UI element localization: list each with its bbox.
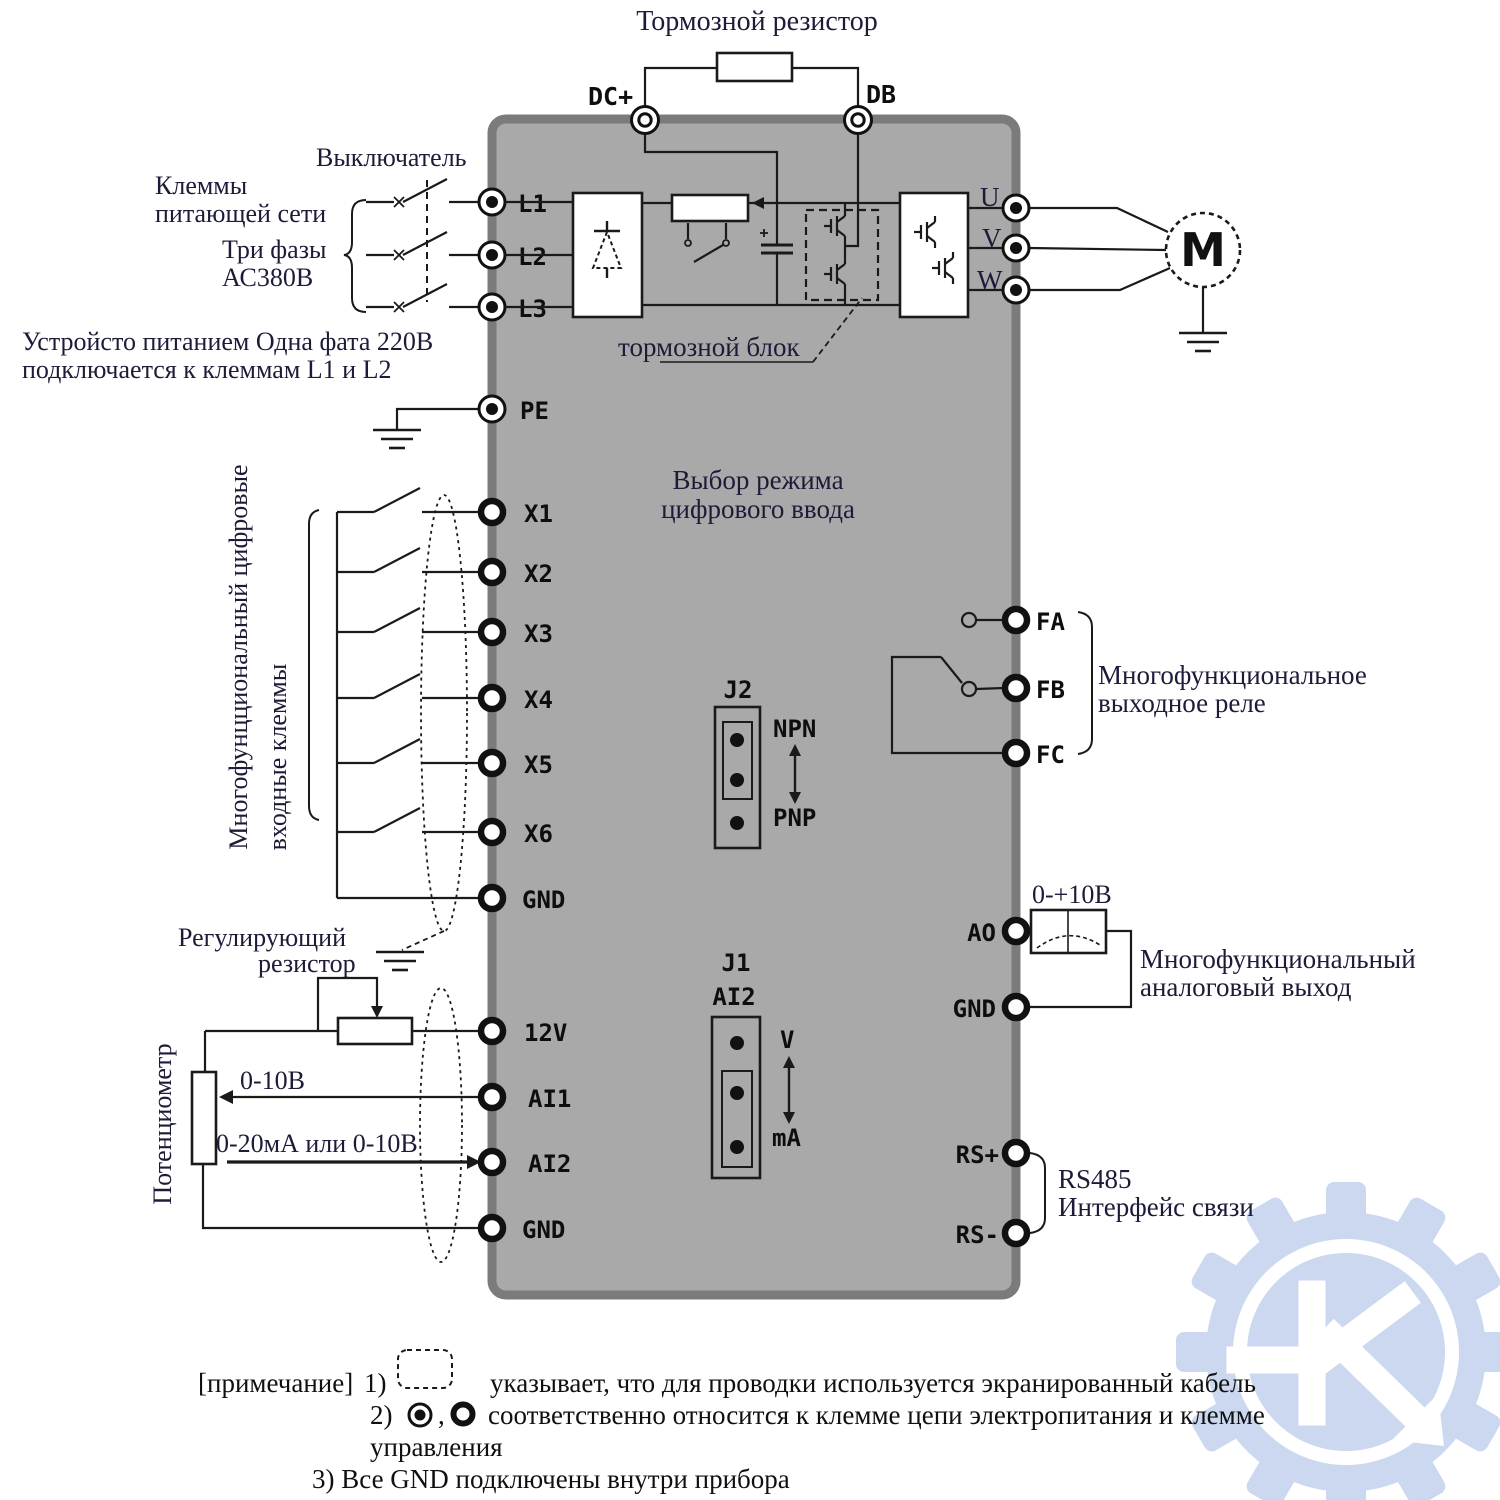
terminal-ai1 (481, 1086, 503, 1108)
terminal-x3 (481, 621, 503, 643)
rs485-bracket (1030, 1153, 1045, 1233)
analog-output-label-2: аналоговый выход (1140, 972, 1352, 1002)
ai1-range-label: 0-10В (240, 1066, 305, 1095)
jumper-j1-label: J1 (722, 949, 751, 977)
terminal-label-l1: L1 (518, 190, 547, 218)
terminal-db (845, 107, 872, 134)
terminal-v (1003, 235, 1029, 261)
terminal-rs-minus (1005, 1222, 1027, 1244)
motor-ground (1179, 333, 1227, 351)
adjusting-resistor-label-1: Регулирующий (178, 923, 346, 952)
pot-gnd-wire (203, 1164, 479, 1228)
terminal-fa (1005, 609, 1027, 631)
relay-output-label-2: выходное реле (1098, 688, 1266, 718)
terminal-w (1003, 277, 1029, 303)
terminal-dc-plus (632, 107, 659, 134)
adjusting-resistor-label-2: резистор (258, 949, 356, 978)
note-3-text: 3) Все GND подключены внутри прибора (312, 1464, 790, 1494)
diagram-title: Тормозной резистор (636, 6, 877, 37)
analog-output-label-1: Многофункциональный (1140, 944, 1416, 974)
rectifier-block (573, 193, 642, 317)
terminal-pe (479, 396, 505, 422)
terminal-x1 (481, 501, 503, 523)
terminal-label-x3: X3 (524, 620, 553, 648)
potentiometer-label: Потенциометр (148, 1043, 177, 1204)
terminal-ai2 (481, 1151, 503, 1173)
terminal-label-dc-plus: DC+ (588, 82, 633, 111)
terminal-l2 (479, 242, 505, 268)
motor-label: M (1180, 223, 1226, 277)
terminal-u (1003, 195, 1029, 221)
single-phase-note-1: Устройсто питанием Одна фата 220В (22, 327, 433, 356)
supply-brace (344, 200, 366, 312)
jumper-j1-sub: AI2 (712, 983, 755, 1011)
terminal-label-x5: X5 (524, 751, 553, 779)
shield-ground-digital (376, 931, 444, 970)
terminal-x4 (481, 687, 503, 709)
terminal-gnd-ao (1005, 996, 1027, 1018)
digital-inputs-label-1: Многофунцциональный цифровые (224, 464, 253, 849)
terminal-label-l2: L2 (518, 243, 547, 271)
jumper-j2-pnp: PNP (773, 804, 816, 832)
note-1-text: указывает, что для проводки используется… (490, 1368, 1256, 1398)
terminal-label-ai2: AI2 (528, 1150, 571, 1178)
terminal-label-fa: FA (1036, 608, 1065, 636)
terminal-x5 (481, 752, 503, 774)
jumper-j2-label: J2 (724, 676, 753, 704)
terminal-label-u: U (980, 182, 1000, 212)
terminal-label-ao: AO (967, 919, 996, 947)
terminal-label-w: W (977, 265, 1003, 295)
terminal-label-fc: FC (1036, 741, 1065, 769)
digital-inputs-label-2: входные клеммы (263, 664, 292, 851)
terminal-label-12v: 12V (524, 1019, 567, 1047)
terminal-fc (1005, 742, 1027, 764)
note-prefix: [примечание] (198, 1368, 353, 1398)
terminal-label-l3: L3 (518, 295, 547, 323)
shield-cable-digital (421, 495, 467, 931)
terminal-label-x2: X2 (524, 560, 553, 588)
terminal-x2 (481, 561, 503, 583)
power-terminal-icon (409, 1404, 431, 1426)
terminal-label-fb: FB (1036, 676, 1065, 704)
jumper-j1-ma: mA (772, 1124, 801, 1152)
rs485-label-1: RS485 (1058, 1164, 1132, 1194)
watermark-logo (1176, 1182, 1500, 1500)
notes: [примечание] 1) указывает, что для прово… (198, 1350, 1265, 1494)
jumper-j2-npn: NPN (773, 715, 816, 743)
wiring-diagram: Тормозной резистор DC+ DB Выключатель Кл… (0, 0, 1500, 1500)
terminal-rs-plus (1005, 1142, 1027, 1164)
supply-terminals-label-2: питающей сети (155, 199, 326, 228)
digital-mode-label-1: Выбор режима (672, 465, 843, 495)
terminal-label-gnd-analog: GND (522, 1216, 565, 1244)
terminal-12v (481, 1020, 503, 1042)
terminal-label-pe: PE (520, 397, 549, 425)
terminal-label-v: V (982, 223, 1002, 253)
three-phase-label-1: Три фазы (222, 235, 326, 264)
inverter-block (900, 193, 968, 317)
terminal-fb (1005, 677, 1027, 699)
note-2-text-cont: управления (370, 1432, 503, 1462)
terminal-l1 (479, 189, 505, 215)
pe-ground (373, 409, 479, 448)
digital-mode-label-2: цифрового ввода (661, 494, 855, 524)
potentiometer-body (192, 1072, 216, 1164)
supply-terminals-label-1: Клеммы (155, 171, 247, 200)
precharge-resistor (672, 195, 748, 221)
shielded-cable-icon (398, 1350, 452, 1388)
terminal-label-ai1: AI1 (528, 1085, 571, 1113)
mains-breaker-switch (366, 179, 479, 312)
note-1-num: 1) (364, 1368, 387, 1398)
note-2-comma: , (438, 1400, 445, 1430)
rheostat-circuit (205, 978, 479, 1072)
digital-inputs-bracket (309, 510, 319, 820)
terminal-ao (1005, 920, 1027, 942)
analog-range-label: 0-+10В (1032, 880, 1112, 909)
note-2-num: 2) (370, 1400, 393, 1430)
terminal-label-x1: X1 (524, 500, 553, 528)
rs485-label-2: Интерфейс связи (1058, 1192, 1254, 1222)
shield-cable-analog (420, 988, 462, 1262)
terminal-gnd-digital (481, 887, 503, 909)
relay-output-label-1: Многофункциональное (1098, 660, 1367, 690)
terminal-l3 (479, 294, 505, 320)
relay-bracket (1078, 612, 1092, 754)
terminal-label-rs-minus: RS- (956, 1221, 999, 1249)
three-phase-label-2: АС380В (222, 263, 313, 292)
rheostat (338, 1018, 412, 1044)
single-phase-note-2: подключается к клеммам L1 и L2 (22, 355, 391, 384)
control-terminal-icon (454, 1405, 473, 1424)
terminal-label-gnd-digital: GND (522, 886, 565, 914)
terminal-label-db: DB (866, 80, 896, 109)
breaker-label: Выключатель (316, 143, 467, 172)
terminal-label-rs-plus: RS+ (956, 1141, 999, 1169)
terminal-label-x6: X6 (524, 820, 553, 848)
terminal-label-x4: X4 (524, 686, 553, 714)
terminal-x6 (481, 821, 503, 843)
terminal-gnd-analog (481, 1217, 503, 1239)
note-2-text: соответственно относится к клемме цепи э… (488, 1400, 1265, 1430)
analog-meter (1029, 910, 1131, 1007)
jumper-j1-v: V (780, 1026, 794, 1054)
brake-resistor (717, 53, 792, 81)
digital-input-switches (337, 488, 479, 898)
ai2-range-label: 0-20мА или 0-10В (216, 1129, 418, 1158)
brake-unit-label: тормозной блок (618, 332, 800, 362)
terminal-label-gnd-ao: GND (953, 995, 996, 1023)
